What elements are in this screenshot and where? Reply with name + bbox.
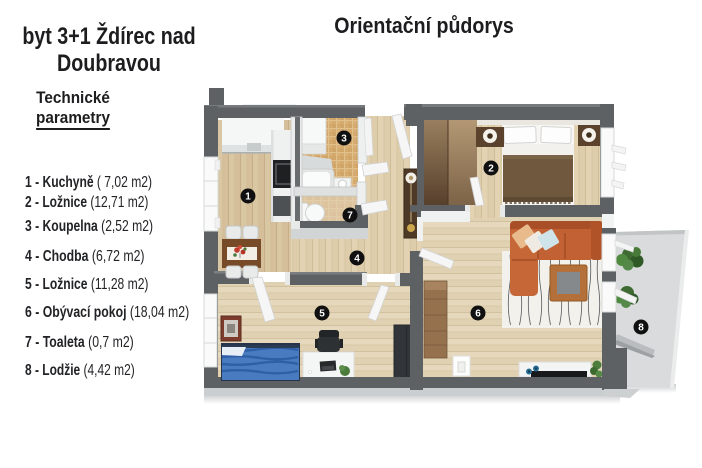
svg-text:5: 5: [319, 309, 325, 320]
svg-text:1: 1: [245, 192, 251, 203]
svg-text:4: 4: [354, 254, 360, 265]
svg-text:6: 6: [475, 309, 481, 320]
svg-text:3: 3: [341, 134, 347, 145]
svg-text:7: 7: [347, 211, 353, 222]
svg-text:2: 2: [488, 164, 494, 175]
svg-text:8: 8: [638, 323, 644, 334]
